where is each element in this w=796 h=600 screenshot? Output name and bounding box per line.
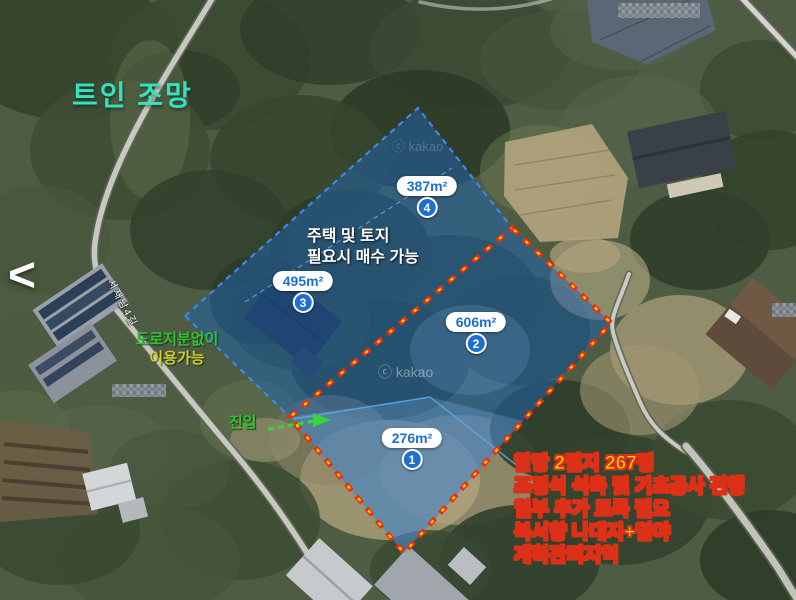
map-attribution-faint: ⓒ kakao	[392, 136, 443, 155]
parcel-marker-1: 276m² 1	[382, 428, 442, 470]
parcel-marker-3: 495m² 3	[273, 271, 333, 313]
parcel-area-pill: 606m²	[446, 312, 506, 332]
road-access-note: 도로지분없이 이용가능	[122, 330, 232, 368]
desc-line-3: 일부 추가 토목 필요	[514, 498, 745, 521]
desc-line-2: 조경석 석축 및 기초공사 진행	[514, 475, 745, 498]
parcel-number-badge: 3	[293, 292, 314, 313]
privacy-blur-right	[772, 303, 796, 317]
desc-line-4: 북서향 나대지+임야	[514, 521, 745, 544]
privacy-blur-left	[112, 384, 166, 397]
parcel-area-pill: 276m²	[382, 428, 442, 448]
privacy-blur-top-right	[618, 3, 700, 18]
purchase-note-line1: 주택 및 토지	[307, 226, 419, 247]
back-chevron-icon[interactable]: <	[8, 252, 36, 300]
parcel-number-badge: 2	[466, 333, 487, 354]
parcel-marker-4: 387m² 4	[397, 176, 457, 218]
purchase-note-line2: 필요시 매수 가능	[307, 247, 419, 268]
map-attribution: ⓒ kakao	[378, 362, 433, 382]
parcel-number-badge: 4	[417, 197, 438, 218]
map-viewer: 트인 조망 주택 및 토지 필요시 매수 가능 도로지분없이 이용가능 진입 알…	[0, 0, 796, 600]
parcel-area-pill: 495m²	[273, 271, 333, 291]
desc-line-5: 계획관리지역	[514, 544, 745, 567]
desc-line-1: 알땅 2필지 267평	[514, 452, 745, 475]
open-view-note: 트인 조망	[72, 74, 193, 114]
parcel-marker-2: 606m² 2	[446, 312, 506, 354]
listing-description: 알땅 2필지 267평 조경석 석축 및 기초공사 진행 일부 추가 토목 필요…	[514, 452, 745, 567]
road-access-line1: 도로지분없이	[122, 330, 232, 349]
purchase-note: 주택 및 토지 필요시 매수 가능	[307, 226, 419, 268]
field-rows	[0, 420, 98, 522]
road-access-line2: 이용가능	[122, 349, 232, 368]
entry-label: 진입	[229, 411, 257, 432]
parcel-area-pill: 387m²	[397, 176, 457, 196]
parcel-number-badge: 1	[402, 449, 423, 470]
